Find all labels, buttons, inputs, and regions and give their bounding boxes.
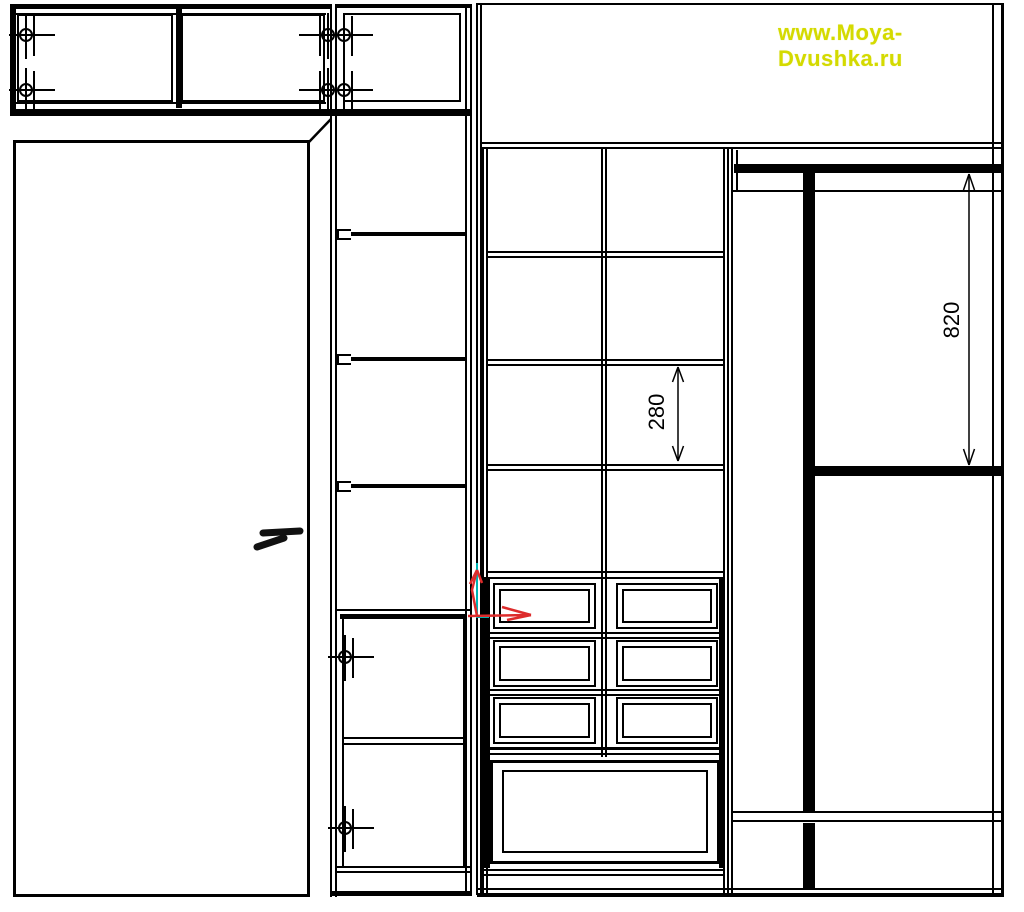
dimension-label-280: 280 [645, 377, 669, 447]
shelf-line [488, 469, 723, 471]
hanging-rod [734, 164, 1002, 173]
drawing-canvas: www.Moya-Dvushka.ru [0, 0, 1024, 912]
cabinet-inner-bottom-line [16, 102, 326, 104]
drawer-front-inner [622, 646, 712, 681]
right-wall-inner-line [992, 3, 994, 894]
cabinet-bottom-line [337, 871, 470, 873]
drawer-front-inner [499, 646, 590, 681]
door-mid-line [344, 737, 463, 739]
column-left-wall-outer [330, 4, 332, 897]
drawer-rail [488, 571, 723, 573]
hinge-icon [335, 806, 367, 852]
cabinet-top-edge [10, 4, 330, 9]
top-frame-line [480, 142, 1003, 144]
cabinet-top-edge [337, 4, 470, 8]
column-right-wall-outer [470, 4, 472, 895]
shelf [340, 357, 467, 361]
thick-divider-lower [803, 823, 815, 889]
under-rod-line [731, 190, 1002, 192]
drawer-front-inner [499, 589, 590, 623]
drawer-front-inner [499, 703, 590, 738]
unit-center-divider [605, 149, 607, 757]
shelf [340, 232, 467, 236]
cabinet-bottom-line [337, 866, 470, 868]
top-frame-line [480, 147, 1003, 149]
shelf [340, 484, 467, 488]
shelf-line [488, 464, 723, 466]
drawer-rail [488, 577, 723, 579]
cabinet-top-line [337, 609, 470, 611]
drawer-front-inner [622, 589, 712, 623]
hinge-icon [16, 68, 48, 114]
hinge-icon [335, 635, 367, 681]
column-right-wall-inner [465, 4, 467, 895]
dimension-820-arrows [964, 174, 975, 465]
right-wall-outer-line [1001, 3, 1004, 894]
big-drawer-front-inner [502, 770, 708, 853]
thick-divider-upper [803, 173, 815, 812]
hinge-icon [334, 68, 366, 114]
bottom-shelf-line [731, 811, 1003, 813]
shelf-edge-cap [337, 354, 351, 365]
bottom-shelf-line [731, 820, 1003, 822]
drawer-front-inner [622, 703, 712, 738]
door-panel [13, 140, 310, 897]
drawer-rail [488, 689, 723, 691]
plinth-line [483, 874, 725, 876]
drawer-rail [488, 753, 723, 755]
partition-wall-left-line [476, 3, 478, 895]
wardrobe-left-wall [731, 149, 733, 894]
drawer-rail [488, 694, 723, 696]
drawer-rail [488, 632, 723, 634]
plinth-line [483, 869, 725, 871]
shelf-line [488, 364, 723, 366]
watermark: www.Moya-Dvushka.ru [778, 20, 1008, 72]
bottom-line [477, 888, 1004, 890]
unit-center-divider [601, 149, 603, 757]
cabinet-plinth-edge [330, 891, 472, 896]
door-edge-diagonal [309, 119, 331, 142]
top-wall-line [477, 3, 1004, 5]
hinge-icon [16, 13, 48, 59]
shelf-edge-cap [337, 481, 351, 492]
shelf-line [488, 359, 723, 361]
unit-right-wall [727, 149, 729, 895]
column-left-wall-inner [335, 4, 337, 897]
door-mid-line [344, 743, 463, 745]
thick-shelf [809, 466, 1002, 476]
dimension-280-arrows [673, 367, 684, 461]
shelf-line [488, 256, 723, 258]
cabinet-bottom-edge [10, 109, 470, 116]
hinge-icon [334, 13, 366, 59]
bottom-edge [477, 893, 1004, 897]
dimension-label-820: 820 [940, 285, 964, 355]
shelf-edge-cap [337, 229, 351, 240]
shelf-line [488, 251, 723, 253]
drawer-rail [488, 747, 723, 750]
drawer-rail [488, 637, 723, 639]
